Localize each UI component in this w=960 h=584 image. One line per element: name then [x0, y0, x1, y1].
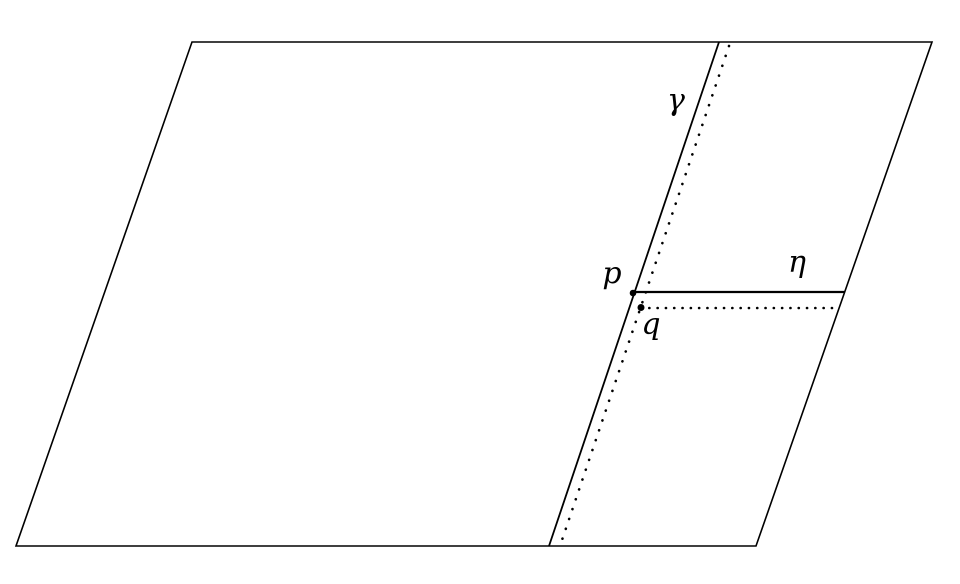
- point-p: [630, 290, 637, 297]
- geometry-diagram: γ η p q: [0, 0, 960, 584]
- label-q: q: [641, 307, 660, 342]
- label-gamma: γ: [667, 83, 685, 118]
- parallelogram-outline: [16, 42, 932, 546]
- figure-canvas: γ η p q: [0, 0, 960, 584]
- label-eta: η: [788, 245, 806, 280]
- label-p: p: [602, 256, 621, 291]
- line-gamma-parallel-dotted: [561, 46, 729, 543]
